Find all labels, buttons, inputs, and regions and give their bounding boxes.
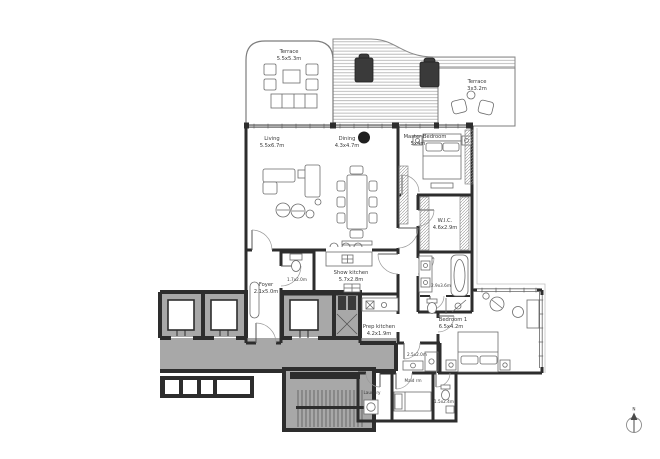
svg-text:4.6x2.9m: 4.6x2.9m bbox=[433, 225, 458, 231]
svg-text:Terrace: Terrace bbox=[279, 49, 299, 55]
label-master-bathroom: 2.9x3.6m bbox=[431, 283, 451, 288]
svg-text:Terrace: Terrace bbox=[467, 79, 487, 85]
svg-text:1.7x2.0m: 1.7x2.0m bbox=[287, 277, 307, 282]
label-foyer: Foyer 2.1x5.0m bbox=[254, 282, 279, 295]
svg-text:Dining: Dining bbox=[339, 136, 356, 142]
svg-text:3x3.2m: 3x3.2m bbox=[467, 86, 487, 92]
svg-text:Laundry: Laundry bbox=[363, 390, 381, 395]
svg-text:Show kitchen: Show kitchen bbox=[334, 270, 369, 276]
terrace-right-outline bbox=[438, 68, 515, 126]
label-guest-bathroom: 2.5x2.0m bbox=[407, 352, 427, 357]
label-dining: Dining 4.3x4.7m bbox=[335, 136, 360, 149]
label-maid-room: Maid rm bbox=[404, 378, 421, 383]
label-wic: W.I.C. 4.6x2.9m bbox=[433, 218, 458, 231]
label-powder-room: 1.7x2.0m bbox=[287, 277, 307, 282]
svg-text:N: N bbox=[632, 407, 635, 412]
svg-text:Master Bedroom: Master Bedroom bbox=[404, 134, 447, 140]
svg-text:4.3x4.7m: 4.3x4.7m bbox=[335, 143, 360, 149]
living-furniture bbox=[263, 165, 321, 218]
label-prep-kitchen: Prep kitchen 4.2x1.9m bbox=[363, 324, 395, 337]
label-terrace-right: Terrace 3x3.2m bbox=[467, 79, 487, 92]
svg-text:W.I.C.: W.I.C. bbox=[438, 218, 453, 224]
label-laundry: Laundry bbox=[363, 390, 381, 395]
column bbox=[358, 132, 370, 144]
floor-plan-canvas: Terrace 5.5x5.3m Terrace 3x3.2m Living 5… bbox=[0, 0, 660, 459]
svg-text:Living: Living bbox=[264, 136, 279, 142]
master-wardrobe bbox=[465, 130, 473, 184]
label-maid-bathroom: 1.5x2.4m bbox=[434, 399, 454, 404]
svg-text:2.9x3.6m: 2.9x3.6m bbox=[431, 283, 451, 288]
svg-text:5.5x6.7m: 5.5x6.7m bbox=[260, 143, 285, 149]
floor-plan-page: Terrace 5.5x5.3m Terrace 3x3.2m Living 5… bbox=[0, 0, 660, 459]
svg-text:4.2x1.9m: 4.2x1.9m bbox=[367, 331, 392, 337]
svg-text:Maid rm: Maid rm bbox=[404, 378, 421, 383]
svg-text:2.1x5.0m: 2.1x5.0m bbox=[254, 289, 279, 295]
svg-text:5.5x5.3m: 5.5x5.3m bbox=[277, 56, 302, 62]
svg-text:Bedroom 1: Bedroom 1 bbox=[439, 317, 467, 323]
svg-text:Prep kitchen: Prep kitchen bbox=[363, 324, 395, 330]
foyer-cabinet bbox=[250, 282, 259, 318]
hall-closet bbox=[399, 166, 408, 224]
svg-text:2.5x2.0m: 2.5x2.0m bbox=[407, 352, 427, 357]
svg-text:6.5x4.2m: 6.5x4.2m bbox=[439, 324, 464, 330]
stair-rail bbox=[296, 406, 366, 409]
svg-text:5x4m: 5x4m bbox=[411, 141, 426, 147]
shaft-row bbox=[160, 376, 254, 398]
label-living: Living 5.5x6.7m bbox=[260, 136, 285, 149]
svg-text:5.7x2.8m: 5.7x2.8m bbox=[339, 277, 364, 283]
label-show-kitchen: Show kitchen 5.7x2.8m bbox=[334, 270, 369, 283]
svg-text:1.5x2.4m: 1.5x2.4m bbox=[434, 399, 454, 404]
label-terrace-left: Terrace 5.5x5.3m bbox=[277, 49, 302, 62]
north-arrow-icon: N bbox=[627, 407, 642, 433]
label-bedroom1: Bedroom 1 6.5x4.2m bbox=[439, 317, 468, 330]
svg-text:Foyer: Foyer bbox=[259, 282, 274, 288]
